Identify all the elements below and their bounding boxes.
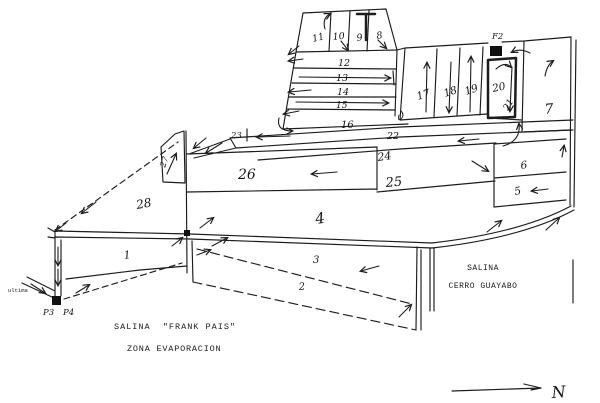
flow-arrow — [200, 218, 213, 228]
flow-arrow — [545, 61, 553, 76]
pond-label-2: 2 — [297, 281, 305, 293]
pond-label-22: 22 — [386, 131, 399, 142]
flow-arrow — [459, 139, 479, 141]
neighbor-name-line1: SALINA — [467, 264, 499, 273]
north-arrow — [452, 384, 541, 391]
label-pump-p4: P4 — [62, 308, 74, 318]
pond-label-6: 6 — [520, 159, 529, 172]
neighbor-area-lines — [430, 248, 573, 311]
pond-1-and-pump-station — [22, 230, 190, 305]
flow-arrow — [82, 202, 96, 213]
pond-5-6-lines — [494, 139, 566, 207]
salina-map-drawing: N 11 10 9 8 12 13 14 15 16 17 18 19 20 2… — [0, 0, 600, 403]
evaporation-fan — [296, 9, 405, 52]
zone-name: ZONA EVAPORACION — [127, 344, 221, 354]
central-dike-vertical — [186, 131, 187, 273]
pond-label-17: 17 — [415, 87, 432, 103]
pond-label-11: 11 — [311, 31, 325, 45]
pond-label-5: 5 — [513, 185, 522, 198]
pond-label-4: 4 — [313, 209, 326, 228]
pond-label-12: 12 — [338, 58, 350, 69]
pond-2-3-area — [192, 241, 421, 330]
label-intake-note: ultima — [8, 287, 29, 294]
pond-number-labels: 11 10 9 8 12 13 14 15 16 17 18 19 20 21 … — [123, 30, 554, 293]
label-f2: F2 — [491, 32, 503, 42]
flow-arrow — [341, 41, 348, 50]
gate-junction-square — [184, 230, 190, 236]
north-indicator: N — [452, 382, 567, 402]
pond-label-10: 10 — [332, 31, 345, 43]
pond-2-3-outline — [192, 241, 421, 330]
pond-label-16: 16 — [341, 120, 354, 131]
feed-channel-lines — [22, 233, 187, 298]
neighbor-salina-area — [430, 248, 573, 311]
pond-label-14: 14 — [337, 87, 349, 98]
flow-arrow — [312, 172, 337, 174]
neighbor-name-line2: CERRO GUAYABO — [449, 282, 518, 291]
fan-outline — [296, 9, 397, 52]
flow-arrow — [399, 305, 411, 317]
north-label: N — [550, 382, 567, 402]
pond-label-9: 9 — [356, 32, 364, 44]
main-dike-double-line — [48, 206, 574, 248]
pond-label-18: 18 — [442, 84, 459, 100]
pond-5-6-block — [494, 139, 566, 207]
pond-label-8: 8 — [376, 30, 384, 42]
flow-arrow — [289, 46, 299, 54]
annotation-labels: F2 P3 P4 ultima SALINA "FRANK PAIS" ZONA… — [8, 32, 517, 354]
flow-arrow — [212, 238, 227, 246]
flow-arrow — [289, 90, 311, 92]
pump-square — [52, 296, 61, 305]
pond-label-3: 3 — [313, 255, 319, 266]
pond-label-20: 20 — [490, 80, 507, 95]
gate-f2-square — [490, 46, 502, 56]
flow-arrow — [472, 161, 488, 171]
right-border-double-line — [570, 37, 576, 207]
pond-label-23: 23 — [230, 131, 242, 141]
pond-28-dashed-edge — [55, 142, 178, 230]
flow-arrow — [562, 146, 564, 157]
flow-arrow — [532, 189, 548, 191]
pond-label-13: 13 — [336, 73, 348, 84]
site-name: SALINA "FRANK PAIS" — [114, 322, 236, 332]
pond-label-25: 25 — [384, 175, 403, 191]
flow-arrow — [56, 223, 66, 231]
pond-label-1: 1 — [123, 248, 131, 262]
flow-arrow — [194, 138, 206, 148]
flow-arrow — [512, 50, 530, 53]
seepage-dashed-line — [64, 263, 182, 299]
pond-28-27-area — [55, 131, 185, 230]
flow-arrow — [496, 64, 511, 69]
pond-label-24: 24 — [376, 149, 393, 164]
label-pump-p3: P3 — [42, 308, 54, 318]
flow-arrow — [289, 59, 303, 61]
flow-arrow — [487, 221, 501, 232]
pond-label-15: 15 — [336, 101, 348, 111]
salina-map-page: N 11 10 9 8 12 13 14 15 16 17 18 19 20 2… — [0, 0, 600, 403]
flow-arrow — [361, 266, 379, 271]
pond-label-26: 26 — [237, 167, 256, 183]
dikes-and-borders — [48, 37, 576, 273]
pond-label-19: 19 — [463, 82, 480, 98]
flow-arrow — [324, 14, 330, 29]
pond-label-28: 28 — [134, 195, 153, 212]
pond-label-7: 7 — [544, 101, 554, 118]
